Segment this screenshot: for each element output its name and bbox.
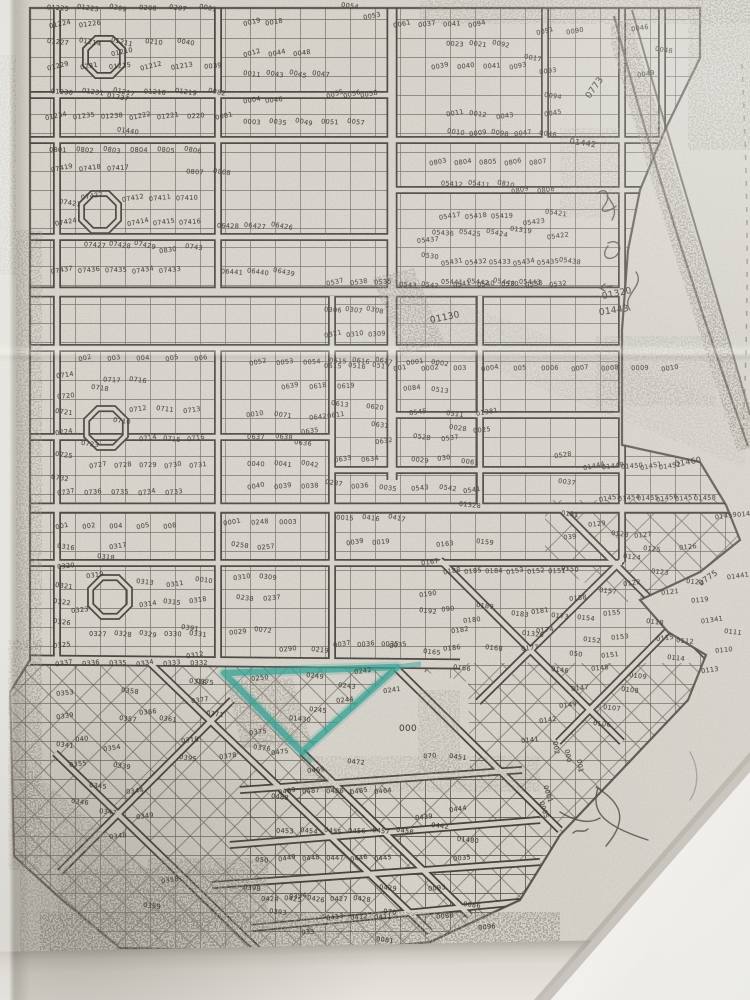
paper-grain	[0, 0, 750, 1000]
cadastral-map-drawing	[0, 0, 750, 1000]
photographed-plot-map: 0121001237014400053005400170093009400450…	[0, 0, 750, 1000]
toner-speckle	[0, 0, 750, 1000]
